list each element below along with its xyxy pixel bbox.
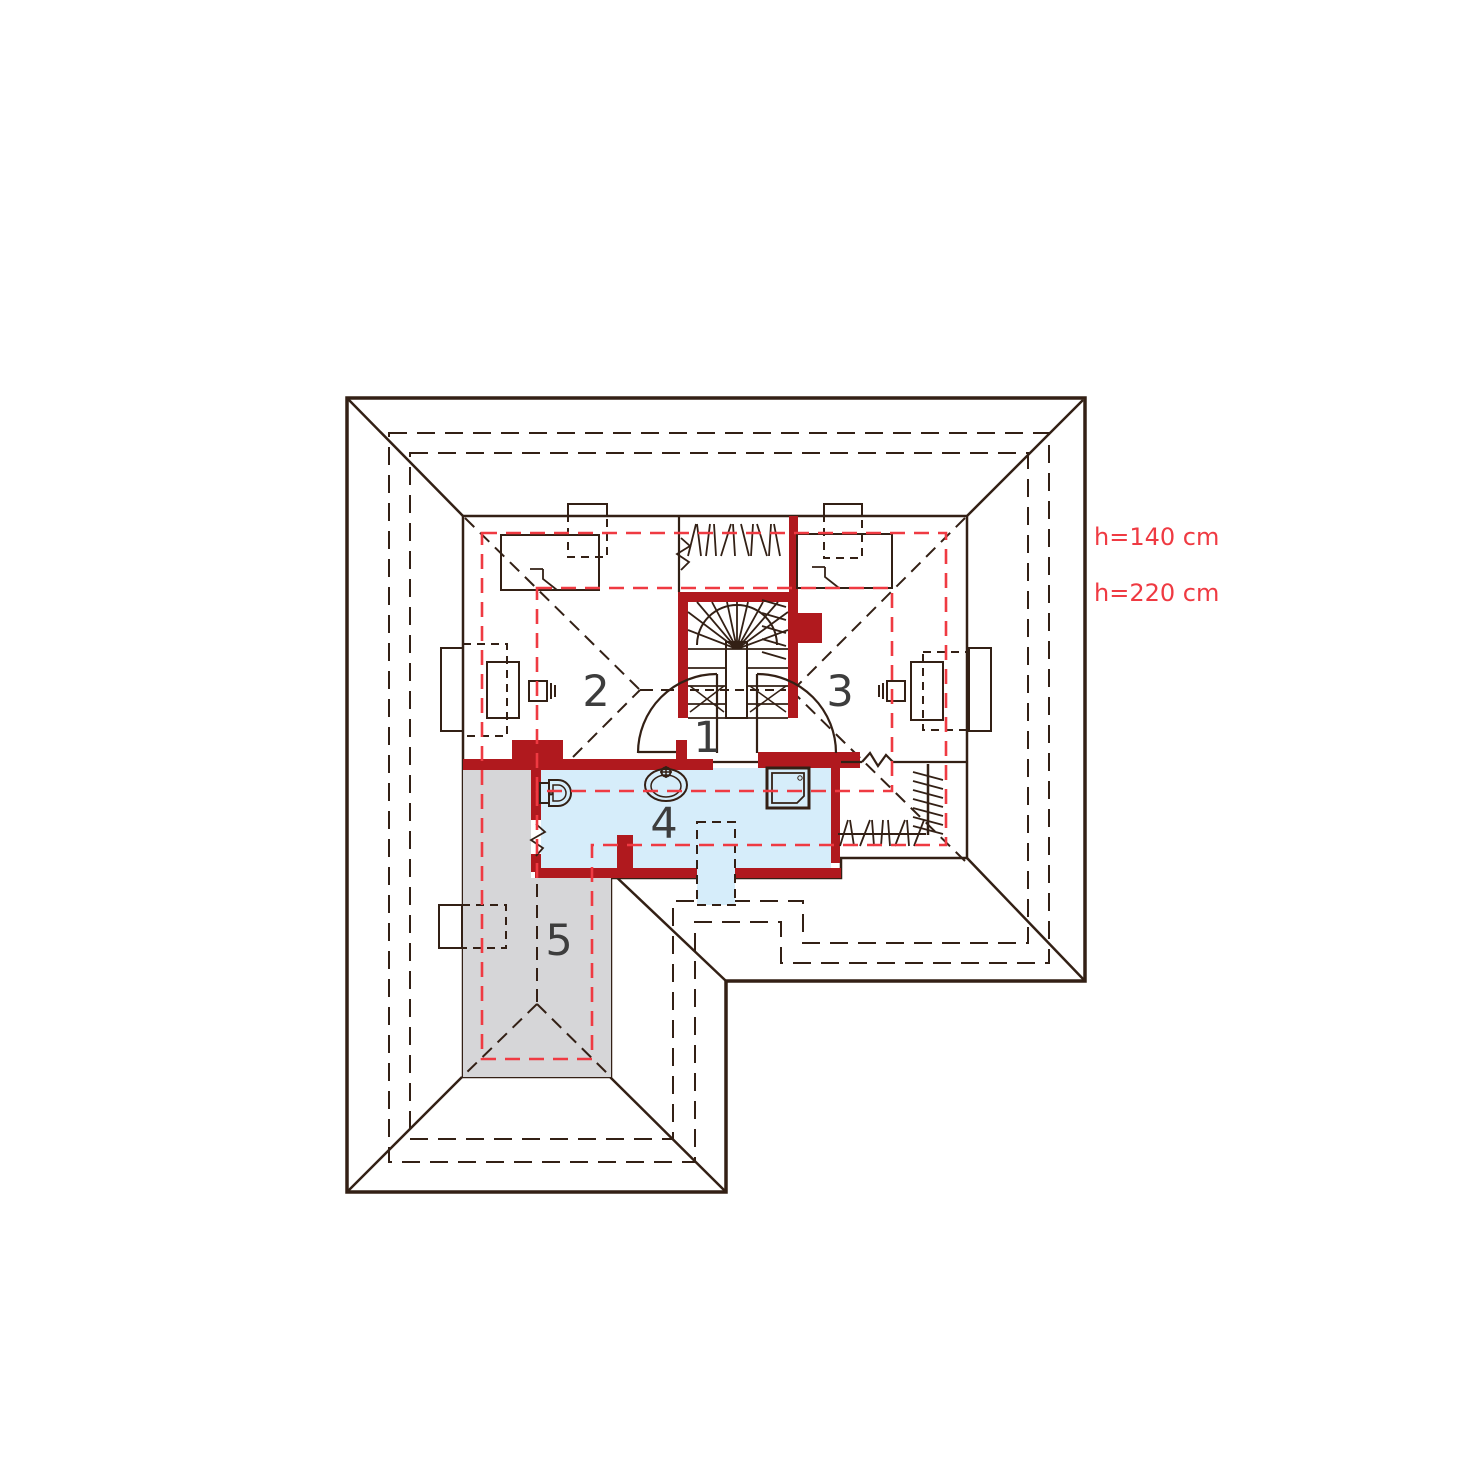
page-background	[0, 0, 1479, 1479]
room4-label: 4	[650, 799, 677, 849]
bathroom-east-wall	[831, 766, 840, 863]
room3-label: 3	[826, 667, 853, 717]
height-220-annotation: h=220 cm	[1094, 579, 1219, 607]
floor-plan-page: 1 2 3 4 5 h=140 cm h=220 cm	[0, 0, 1479, 1479]
chimney-wall-block	[798, 613, 822, 643]
height-140-annotation: h=140 cm	[1094, 523, 1219, 551]
room5-label: 5	[545, 916, 572, 966]
room1-label: 1	[693, 713, 720, 763]
bathroom-north-wall-right	[758, 752, 860, 768]
chimney-shaft	[697, 822, 735, 905]
stairs-wall-top	[678, 592, 798, 602]
room2-label: 2	[582, 667, 609, 717]
floor-plan-canvas: 1 2 3 4 5 h=140 cm h=220 cm	[0, 0, 1479, 1479]
stairs-wall-left	[678, 602, 688, 718]
bathroom-interior-stub	[617, 835, 633, 868]
bathroom-south-wall	[535, 868, 841, 878]
stairs-wall-right	[788, 602, 798, 718]
bathroom-north-wall	[463, 759, 713, 770]
